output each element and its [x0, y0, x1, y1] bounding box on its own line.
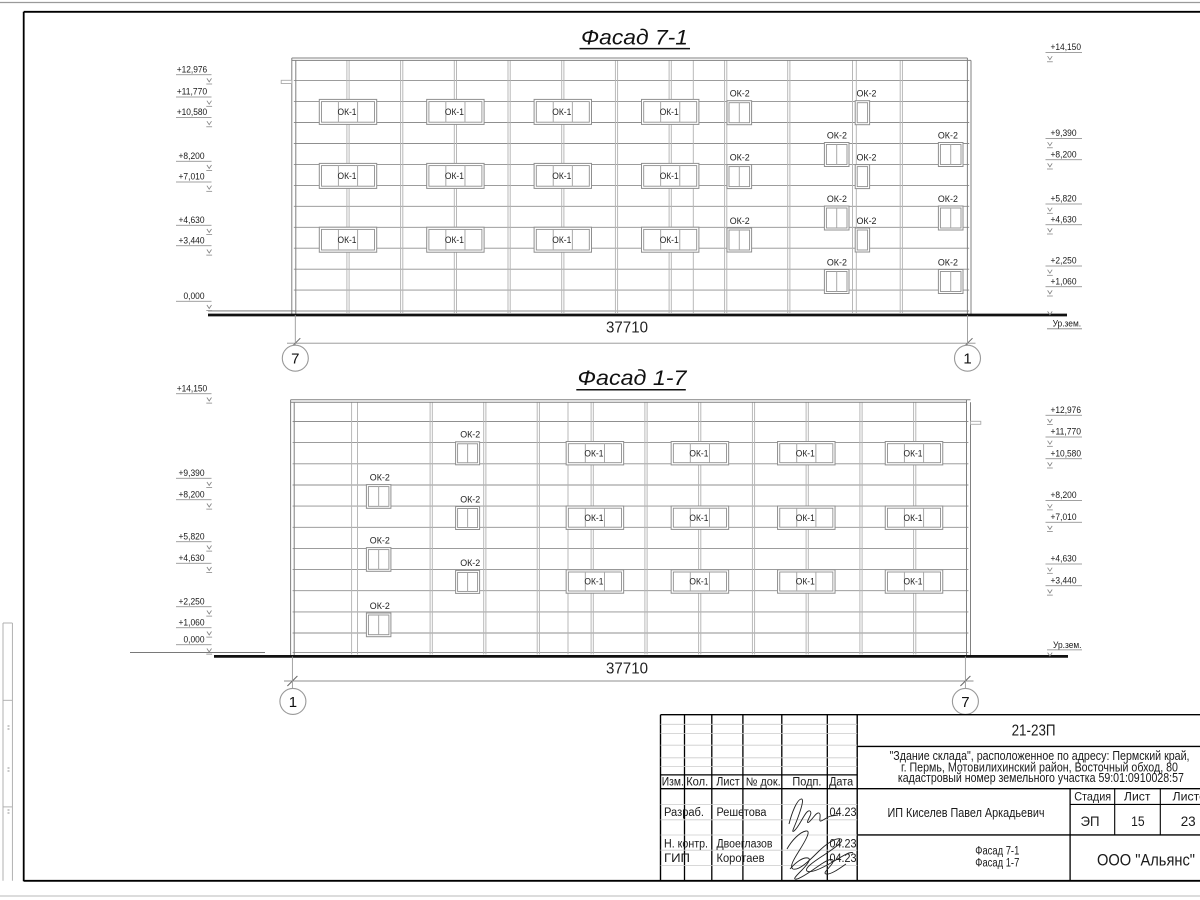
svg-text:Двоеглазов: Двоеглазов — [717, 839, 773, 851]
svg-text:0,000: 0,000 — [184, 634, 205, 644]
svg-text:ОК-1: ОК-1 — [796, 448, 815, 458]
svg-text:ОК-1: ОК-1 — [552, 107, 571, 117]
svg-text:Лист: Лист — [1124, 790, 1151, 804]
svg-text:Подп.: Подп. — [792, 777, 821, 789]
svg-text:7: 7 — [961, 694, 969, 711]
svg-text:21-23П: 21-23П — [1012, 722, 1056, 739]
svg-text:ОК-2: ОК-2 — [370, 472, 390, 482]
svg-text:0,000: 0,000 — [184, 291, 205, 301]
svg-text:№ док.: № док. — [746, 777, 781, 789]
svg-text:+8,200: +8,200 — [179, 151, 205, 161]
svg-text:ОК-2: ОК-2 — [827, 257, 847, 267]
svg-text:ОК-2: ОК-2 — [857, 152, 877, 162]
svg-text:ОК-1: ОК-1 — [689, 513, 708, 523]
svg-text:ОК-2: ОК-2 — [938, 130, 958, 140]
svg-text:ОК-1: ОК-1 — [796, 513, 815, 523]
svg-text:+7,010: +7,010 — [1051, 512, 1077, 522]
svg-text:+11,770: +11,770 — [1051, 427, 1082, 437]
svg-text:+9,390: +9,390 — [179, 468, 205, 478]
svg-text:ООО "Альянс": ООО "Альянс" — [1097, 851, 1195, 869]
svg-text:Разраб.: Разраб. — [664, 807, 704, 819]
svg-text:ОК-2: ОК-2 — [938, 257, 958, 267]
svg-text:+3,440: +3,440 — [1051, 575, 1077, 585]
svg-text:+10,580: +10,580 — [177, 107, 208, 117]
svg-text:+2,250: +2,250 — [179, 596, 205, 606]
svg-text:Решетова: Решетова — [717, 807, 768, 819]
svg-text:+8,200: +8,200 — [1051, 149, 1077, 159]
svg-text:ОК-1: ОК-1 — [338, 107, 357, 117]
svg-text:ОК-1: ОК-1 — [552, 171, 571, 181]
svg-text:+12,976: +12,976 — [1051, 405, 1082, 415]
svg-text:+4,630: +4,630 — [1051, 214, 1077, 224]
svg-text:+14,150: +14,150 — [1051, 42, 1082, 52]
svg-text:+2,250: +2,250 — [1051, 256, 1077, 266]
svg-text:37710: 37710 — [606, 320, 648, 337]
svg-text:ОК-2: ОК-2 — [857, 89, 877, 99]
svg-text:+5,820: +5,820 — [1051, 194, 1077, 204]
svg-text:ОК-1: ОК-1 — [445, 235, 464, 245]
svg-text:ОК-1: ОК-1 — [338, 171, 357, 181]
svg-text:+8,200: +8,200 — [179, 489, 205, 499]
svg-text:1: 1 — [289, 694, 297, 711]
svg-text:23: 23 — [1181, 813, 1196, 829]
svg-text:ОК-1: ОК-1 — [660, 235, 679, 245]
svg-text:ОК-2: ОК-2 — [827, 130, 847, 140]
svg-text:Ур.зем.: Ур.зем. — [1053, 318, 1082, 328]
svg-text:+9,390: +9,390 — [1051, 128, 1077, 138]
svg-text:ОК-1: ОК-1 — [338, 235, 357, 245]
svg-text:+4,630: +4,630 — [179, 215, 205, 225]
svg-text:Фасад 1-7: Фасад 1-7 — [975, 857, 1019, 869]
svg-text:ИП Киселев Павел Аркадьевич: ИП Киселев Павел Аркадьевич — [888, 806, 1045, 820]
svg-text:ОК-1: ОК-1 — [904, 448, 923, 458]
svg-text:ОК-1: ОК-1 — [552, 235, 571, 245]
svg-text:ОК-1: ОК-1 — [445, 107, 464, 117]
svg-text:04.23: 04.23 — [830, 853, 857, 865]
svg-text:ОК-1: ОК-1 — [689, 448, 708, 458]
svg-text:+4,630: +4,630 — [179, 553, 205, 563]
svg-text:ОК-2: ОК-2 — [730, 216, 750, 226]
svg-text:Фасад 7-1: Фасад 7-1 — [975, 846, 1019, 858]
svg-text:Ур.зем.: Ур.зем. — [1053, 640, 1082, 650]
svg-text:ОК-1: ОК-1 — [796, 577, 815, 587]
svg-text:ОК-1: ОК-1 — [904, 513, 923, 523]
svg-text:Лист: Лист — [716, 777, 740, 789]
svg-text:+3,440: +3,440 — [179, 235, 205, 245]
svg-text:15: 15 — [1131, 813, 1145, 829]
svg-text:кадастровый номер земельного у: кадастровый номер земельного участка 59:… — [898, 771, 1184, 785]
svg-text:+1,060: +1,060 — [1051, 276, 1077, 286]
svg-text:ОК-2: ОК-2 — [857, 216, 877, 226]
svg-text:+4,630: +4,630 — [1051, 554, 1077, 564]
svg-text:+1,060: +1,060 — [179, 617, 205, 627]
svg-text:+11,770: +11,770 — [177, 87, 208, 97]
svg-text:Листов: Листов — [1173, 790, 1200, 804]
svg-text:ЭП: ЭП — [1081, 813, 1100, 829]
svg-text:ОК-2: ОК-2 — [730, 89, 750, 99]
svg-text:ОК-2: ОК-2 — [460, 430, 480, 440]
svg-text:ОК-2: ОК-2 — [370, 601, 390, 611]
svg-text:37710: 37710 — [606, 660, 648, 677]
svg-text:ОК-1: ОК-1 — [584, 577, 603, 587]
svg-text:7: 7 — [291, 351, 299, 368]
svg-text:ОК-2: ОК-2 — [827, 194, 847, 204]
svg-text:Дата: Дата — [829, 777, 854, 789]
svg-text:ОК-2: ОК-2 — [460, 494, 480, 504]
svg-text:ОК-1: ОК-1 — [660, 171, 679, 181]
svg-text:Изм.: Изм. — [662, 777, 684, 789]
svg-text:+8,200: +8,200 — [1051, 490, 1077, 500]
svg-text:ОК-2: ОК-2 — [460, 558, 480, 568]
svg-text:ОК-1: ОК-1 — [584, 448, 603, 458]
svg-text:ОК-1: ОК-1 — [660, 107, 679, 117]
svg-text:+12,976: +12,976 — [177, 64, 208, 74]
svg-text:Коротаев: Коротаев — [717, 853, 765, 865]
svg-text:ОК-1: ОК-1 — [445, 171, 464, 181]
svg-text:ГИП: ГИП — [664, 853, 690, 865]
svg-text:ОК-2: ОК-2 — [938, 194, 958, 204]
svg-text:+7,010: +7,010 — [179, 172, 205, 182]
svg-text:Кол.: Кол. — [686, 777, 708, 789]
svg-text:Фасад 1-7: Фасад 1-7 — [578, 366, 688, 390]
svg-text:+10,580: +10,580 — [1051, 448, 1082, 458]
svg-text:ОК-1: ОК-1 — [689, 577, 708, 587]
svg-text:+5,820: +5,820 — [179, 531, 205, 541]
svg-text:Фасад 7-1: Фасад 7-1 — [581, 25, 688, 49]
svg-text:1: 1 — [963, 351, 971, 368]
svg-text:04.23: 04.23 — [830, 807, 857, 819]
svg-text:+14,150: +14,150 — [177, 383, 208, 393]
svg-text:ОК-1: ОК-1 — [904, 577, 923, 587]
svg-text:Стадия: Стадия — [1074, 790, 1111, 804]
svg-text:ОК-2: ОК-2 — [730, 152, 750, 162]
svg-text:Н. контр.: Н. контр. — [664, 839, 708, 851]
svg-text:ОК-1: ОК-1 — [584, 513, 603, 523]
svg-text:ОК-2: ОК-2 — [370, 535, 390, 545]
